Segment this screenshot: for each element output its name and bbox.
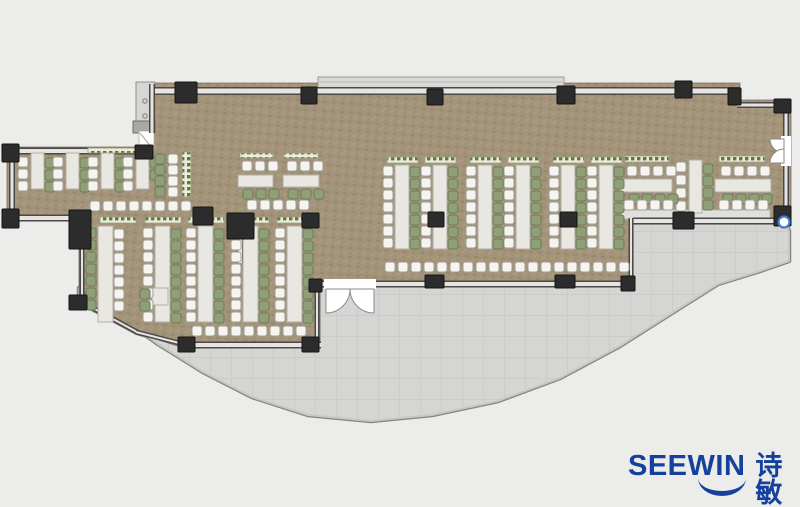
chair-white <box>466 178 476 188</box>
chair-white <box>383 202 393 212</box>
chair-white <box>53 181 63 191</box>
chair-white <box>466 226 476 236</box>
table <box>238 175 273 187</box>
chair-white <box>88 169 98 179</box>
chair-white <box>275 252 285 262</box>
chair-white <box>300 161 310 171</box>
chair-white <box>143 240 153 250</box>
chair-white <box>549 214 559 224</box>
chair-white <box>587 226 597 236</box>
column <box>675 81 692 98</box>
chair-green <box>256 189 266 199</box>
chair-white <box>549 202 559 212</box>
chair-white <box>114 289 124 299</box>
chair-white <box>114 253 124 263</box>
chair-white <box>504 178 514 188</box>
chair-white <box>287 161 297 171</box>
table <box>561 165 575 249</box>
chair-white <box>18 181 28 191</box>
chair-green <box>614 191 624 201</box>
chair-white <box>186 300 196 310</box>
chair-white <box>275 300 285 310</box>
column <box>301 87 317 104</box>
planter <box>284 153 318 158</box>
chair-green <box>269 189 279 199</box>
chair-white <box>745 200 755 210</box>
chair-white <box>666 166 676 176</box>
chair-green <box>493 239 503 249</box>
chair-white <box>103 201 113 211</box>
chair-white <box>123 157 133 167</box>
column <box>302 213 319 228</box>
chair-white <box>466 238 476 248</box>
chair-white <box>129 201 139 211</box>
chair-white <box>719 200 729 210</box>
chair-green <box>614 227 624 237</box>
chair-white <box>504 190 514 200</box>
chair-white <box>450 262 460 272</box>
chair-white <box>502 262 512 272</box>
table <box>478 165 492 249</box>
chair-white <box>587 214 597 224</box>
chair-green <box>703 200 713 210</box>
chair-green <box>493 203 503 213</box>
planter <box>425 157 456 163</box>
planter <box>719 156 765 162</box>
chair-green <box>288 189 298 199</box>
chair-white <box>186 276 196 286</box>
column <box>427 89 443 105</box>
chair-green <box>576 191 586 201</box>
chair-green <box>171 253 181 263</box>
chair-white <box>88 181 98 191</box>
column <box>557 86 575 104</box>
chair-white <box>650 200 660 210</box>
chair-green <box>410 167 420 177</box>
chair-white <box>437 262 447 272</box>
chair-white <box>385 262 395 272</box>
chair-green <box>703 164 713 174</box>
chair-white <box>53 169 63 179</box>
chair-white <box>143 264 153 274</box>
chair-green <box>259 253 269 263</box>
chair-green <box>259 301 269 311</box>
planter <box>508 157 539 163</box>
column <box>673 212 694 229</box>
planter <box>553 157 584 163</box>
chair-green <box>86 252 96 262</box>
annotation-marker <box>779 217 790 228</box>
chair-green <box>171 265 181 275</box>
column <box>2 144 19 162</box>
chair-white <box>627 166 637 176</box>
chair-white <box>466 214 476 224</box>
chair-green <box>703 176 713 186</box>
chair-green <box>314 189 324 199</box>
chair-green <box>171 277 181 287</box>
chair-green <box>259 277 269 287</box>
column <box>69 295 87 310</box>
chair-white <box>90 201 100 211</box>
chair-green <box>531 215 541 225</box>
chair-white <box>549 226 559 236</box>
chair-green <box>614 179 624 189</box>
chair-white <box>88 157 98 167</box>
chair-green <box>214 313 224 323</box>
table <box>243 226 258 322</box>
chair-green <box>171 289 181 299</box>
chair-white <box>515 262 525 272</box>
chair-white <box>114 301 124 311</box>
chair-white <box>489 262 499 272</box>
chair-white <box>383 166 393 176</box>
chair-white <box>123 169 133 179</box>
chair-white <box>549 238 559 248</box>
planter <box>240 153 273 158</box>
chair-white <box>421 178 431 188</box>
chair-white <box>640 166 650 176</box>
table <box>689 160 702 213</box>
chair-green <box>531 239 541 249</box>
chair-white <box>732 200 742 210</box>
chair-green <box>303 301 313 311</box>
chair-green <box>140 301 150 311</box>
floor-plan-drawing <box>0 0 800 507</box>
chair-white <box>637 200 647 210</box>
chair-white <box>504 166 514 176</box>
table <box>31 153 44 189</box>
chair-white <box>116 201 126 211</box>
chair-green <box>171 229 181 239</box>
chair-green <box>448 215 458 225</box>
column <box>178 337 195 352</box>
chair-white <box>231 252 241 262</box>
chair-green <box>493 167 503 177</box>
column <box>309 279 322 292</box>
chair-white <box>218 326 228 336</box>
chair-white <box>53 157 63 167</box>
chair-white <box>476 262 486 272</box>
chair-white <box>275 312 285 322</box>
chair-white <box>411 262 421 272</box>
chair-green <box>214 289 224 299</box>
chair-white <box>155 201 165 211</box>
chair-white <box>168 154 178 164</box>
chair-green <box>155 187 165 197</box>
chair-white <box>275 288 285 298</box>
chair-white <box>383 226 393 236</box>
chair-green <box>493 215 503 225</box>
chair-green <box>531 191 541 201</box>
chair-white <box>143 312 153 322</box>
column <box>227 213 254 239</box>
chair-green <box>410 191 420 201</box>
column <box>728 88 741 105</box>
column <box>69 210 91 249</box>
chair-white <box>676 162 686 172</box>
chair-green <box>703 188 713 198</box>
chair-white <box>231 312 241 322</box>
chair-white <box>231 276 241 286</box>
table <box>516 165 530 249</box>
chair-white <box>424 262 434 272</box>
chair-green <box>259 313 269 323</box>
chair-white <box>168 187 178 197</box>
chair-green <box>576 167 586 177</box>
chair-white <box>260 200 270 210</box>
chair-white <box>758 200 768 210</box>
chair-white <box>142 201 152 211</box>
chair-green <box>259 229 269 239</box>
planter <box>591 157 622 163</box>
chair-white <box>554 262 564 272</box>
planter <box>100 217 136 223</box>
chair-white <box>205 326 215 336</box>
chair-white <box>186 252 196 262</box>
chair-white <box>421 238 431 248</box>
chair-green <box>493 179 503 189</box>
chair-white <box>257 326 267 336</box>
chair-white <box>587 238 597 248</box>
table <box>620 179 672 192</box>
table <box>101 153 114 189</box>
chair-white <box>504 202 514 212</box>
chair-green <box>410 203 420 213</box>
chair-white <box>653 166 663 176</box>
chair-white <box>624 200 634 210</box>
planter <box>470 157 501 163</box>
brand-logo-cjk: 诗敏 <box>755 453 800 507</box>
chair-green <box>86 276 96 286</box>
chair-white <box>567 262 577 272</box>
chair-white <box>296 326 306 336</box>
chair-white <box>593 262 603 272</box>
chair-white <box>143 276 153 286</box>
chair-white <box>398 262 408 272</box>
chair-green <box>410 179 420 189</box>
chair-white <box>587 166 597 176</box>
chair-white <box>275 276 285 286</box>
chair-white <box>466 190 476 200</box>
column <box>555 275 575 288</box>
table <box>433 165 447 249</box>
chair-white <box>541 262 551 272</box>
table <box>395 165 409 249</box>
column <box>175 82 197 103</box>
chair-white <box>186 228 196 238</box>
chair-white <box>186 288 196 298</box>
chair-green <box>614 167 624 177</box>
chair-green <box>214 301 224 311</box>
column <box>560 212 577 227</box>
chair-white <box>275 228 285 238</box>
chair-white <box>421 202 431 212</box>
chair-green <box>259 265 269 275</box>
chair-green <box>214 265 224 275</box>
chair-green <box>171 241 181 251</box>
chair-white <box>313 161 323 171</box>
chair-white <box>549 178 559 188</box>
chair-green <box>155 165 165 175</box>
chair-green <box>171 301 181 311</box>
column <box>2 209 19 228</box>
chair-green <box>303 229 313 239</box>
chair-green <box>410 239 420 249</box>
chair-white <box>114 277 124 287</box>
chair-green <box>493 227 503 237</box>
chair-white <box>504 214 514 224</box>
chair-white <box>270 326 280 336</box>
table <box>155 226 170 322</box>
table <box>66 153 79 189</box>
chair-green <box>448 227 458 237</box>
door-opening <box>324 279 376 289</box>
chair-green <box>493 191 503 201</box>
chair-white <box>18 169 28 179</box>
chair-white <box>286 200 296 210</box>
chair-green <box>576 227 586 237</box>
table <box>198 226 213 322</box>
chair-white <box>231 326 241 336</box>
table <box>98 226 113 322</box>
chair-white <box>299 200 309 210</box>
chair-white <box>734 166 744 176</box>
chair-white <box>114 229 124 239</box>
chair-green <box>171 313 181 323</box>
chair-white <box>181 201 191 211</box>
chair-white <box>504 238 514 248</box>
table <box>715 179 771 192</box>
chair-white <box>186 264 196 274</box>
chair-white <box>747 166 757 176</box>
table <box>283 175 319 187</box>
chair-green <box>155 154 165 164</box>
chair-white <box>255 161 265 171</box>
chair-white <box>463 262 473 272</box>
column <box>302 337 319 352</box>
chair-white <box>231 240 241 250</box>
planter <box>387 157 418 163</box>
chair-white <box>504 226 514 236</box>
chair-white <box>123 181 133 191</box>
chair-white <box>606 262 616 272</box>
chair-white <box>466 166 476 176</box>
chair-white <box>619 262 629 272</box>
chair-green <box>214 241 224 251</box>
chair-green <box>448 191 458 201</box>
chair-white <box>143 252 153 262</box>
chair-white <box>587 178 597 188</box>
chair-green <box>531 203 541 213</box>
chair-white <box>587 202 597 212</box>
chair-green <box>448 179 458 189</box>
chair-white <box>760 166 770 176</box>
brand-logo: SEEWIN 诗敏 <box>628 452 800 507</box>
chair-white <box>383 238 393 248</box>
chair-white <box>283 326 293 336</box>
chair-green <box>531 227 541 237</box>
table <box>599 165 613 249</box>
chair-white <box>421 166 431 176</box>
chair-white <box>528 262 538 272</box>
chair-white <box>168 201 178 211</box>
chair-white <box>114 265 124 275</box>
chair-white <box>676 175 686 185</box>
chair-white <box>242 161 252 171</box>
chair-white <box>114 241 124 251</box>
chair-white <box>587 190 597 200</box>
chair-white <box>663 200 673 210</box>
chair-white <box>421 190 431 200</box>
chair-white <box>168 165 178 175</box>
chair-green <box>259 241 269 251</box>
chair-white <box>383 178 393 188</box>
column <box>193 207 213 225</box>
column <box>621 276 635 291</box>
chair-white <box>247 200 257 210</box>
chair-white <box>466 202 476 212</box>
table <box>152 288 168 305</box>
chair-green <box>576 203 586 213</box>
chair-white <box>383 214 393 224</box>
chair-green <box>214 253 224 263</box>
chair-green <box>576 179 586 189</box>
chair-white <box>275 264 285 274</box>
column <box>135 145 153 159</box>
chair-green <box>410 215 420 225</box>
brand-smile-icon <box>698 478 746 496</box>
floor-plan-stage: SEEWIN 诗敏 <box>0 0 800 507</box>
chair-green <box>614 215 624 225</box>
chair-green <box>155 176 165 186</box>
column <box>774 99 791 113</box>
chair-white <box>273 200 283 210</box>
chair-green <box>448 167 458 177</box>
chair-green <box>303 265 313 275</box>
table <box>287 226 302 322</box>
chair-green <box>303 241 313 251</box>
chair-green <box>259 289 269 299</box>
planter <box>182 152 191 197</box>
chair-green <box>243 189 253 199</box>
chair-white <box>549 190 559 200</box>
chair-green <box>614 203 624 213</box>
chair-white <box>186 312 196 322</box>
chair-white <box>143 228 153 238</box>
column <box>428 212 444 227</box>
chair-green <box>86 264 96 274</box>
chair-white <box>192 326 202 336</box>
chair-green <box>214 277 224 287</box>
chair-white <box>383 190 393 200</box>
chair-green <box>301 189 311 199</box>
chair-green <box>303 313 313 323</box>
chair-green <box>448 203 458 213</box>
chair-green <box>410 227 420 237</box>
chair-white <box>186 240 196 250</box>
chair-green <box>303 253 313 263</box>
chair-white <box>721 166 731 176</box>
chair-white <box>231 300 241 310</box>
chair-white <box>268 161 278 171</box>
chair-white <box>231 264 241 274</box>
chair-white <box>549 166 559 176</box>
brand-logo-latin: SEEWIN <box>628 452 745 481</box>
chair-green <box>140 289 150 299</box>
chair-green <box>448 239 458 249</box>
column <box>425 275 444 288</box>
chair-green <box>214 229 224 239</box>
